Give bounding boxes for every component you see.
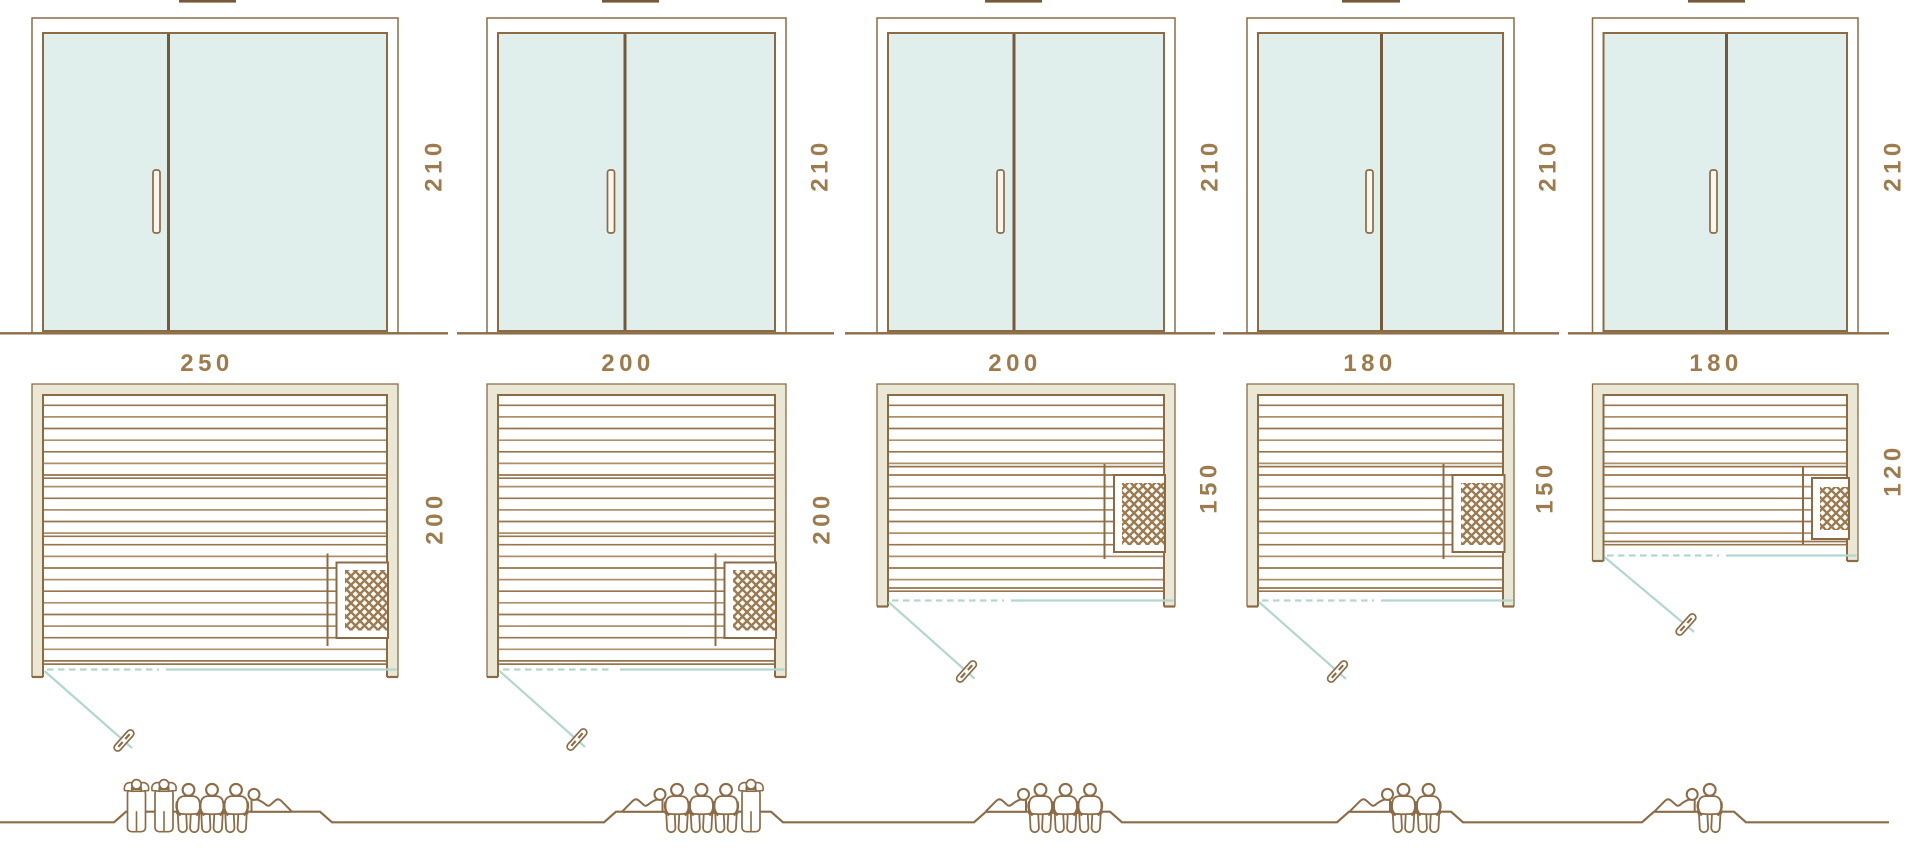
svg-text:210: 210: [1197, 138, 1224, 192]
svg-text:200: 200: [988, 350, 1042, 377]
svg-text:210: 210: [1880, 138, 1907, 192]
svg-text:150: 150: [1532, 460, 1559, 514]
svg-text:200: 200: [422, 491, 449, 545]
svg-text:210: 210: [421, 138, 448, 192]
svg-text:210: 210: [807, 138, 834, 192]
svg-text:120: 120: [1880, 443, 1907, 497]
svg-text:180: 180: [1343, 350, 1397, 377]
svg-text:150: 150: [1196, 460, 1223, 514]
svg-text:210: 210: [1535, 138, 1562, 192]
svg-text:200: 200: [601, 350, 655, 377]
svg-text:200: 200: [809, 491, 836, 545]
svg-text:250: 250: [180, 350, 234, 377]
svg-text:180: 180: [1689, 350, 1743, 377]
